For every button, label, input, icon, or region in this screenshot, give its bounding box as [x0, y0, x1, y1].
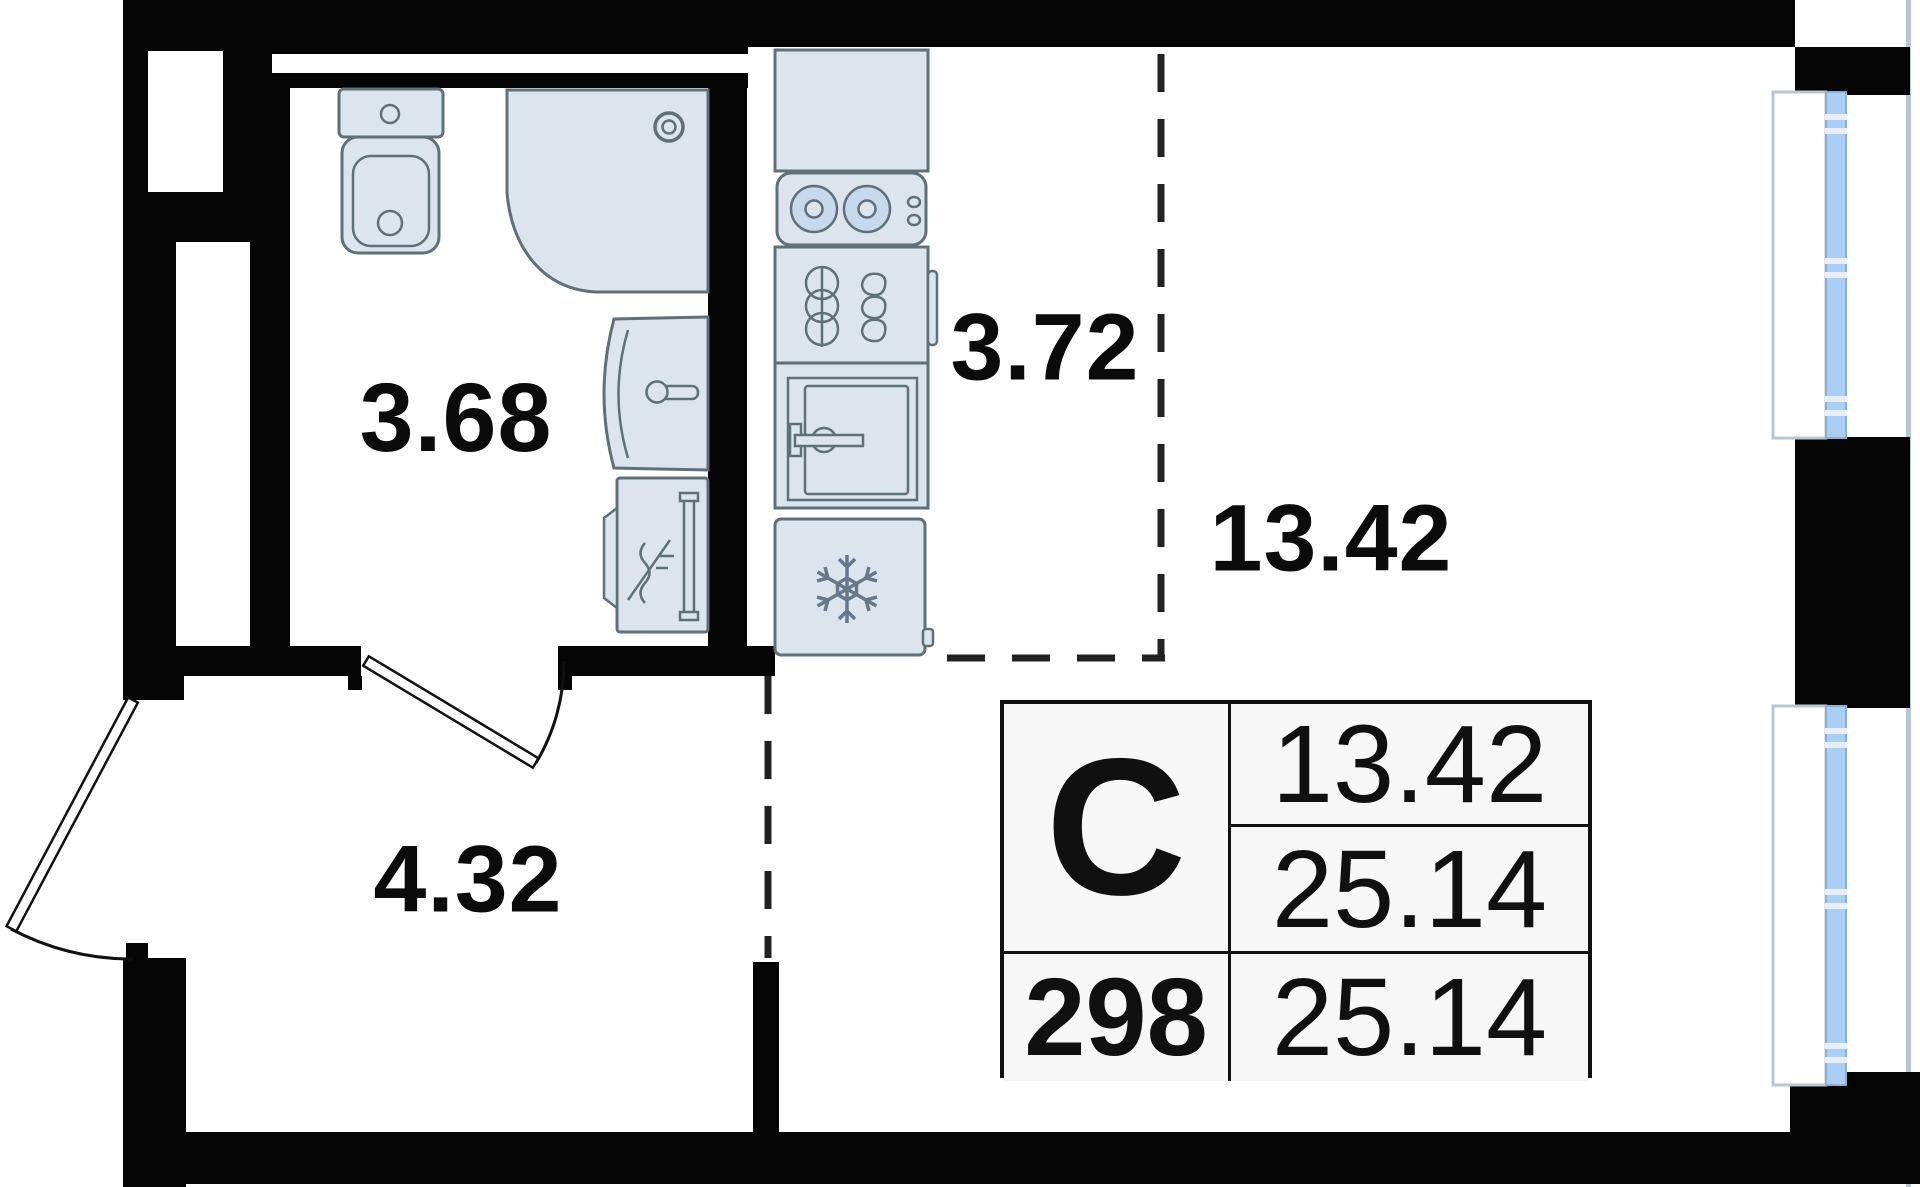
entry-door-leaf [7, 697, 138, 931]
bath-door-jamb-left [348, 676, 362, 690]
floor-plan-drawing [0, 0, 1920, 1187]
bathroom-area-label: 3.68 [360, 362, 553, 474]
floor-plan-canvas: 3.68 3.72 13.42 4.32 С 13.42 25.14 298 2… [0, 0, 1920, 1187]
window-sill-board [1773, 706, 1826, 1085]
window-glazing-icon [1826, 92, 1846, 438]
living-area-label: 13.42 [1210, 485, 1453, 594]
unit-info-table: С 13.42 25.14 298 25.14 [1000, 700, 1592, 1078]
unit-living-area: 13.42 [1231, 704, 1588, 827]
kitchen-cabinet [775, 50, 928, 171]
oven-icon [775, 363, 928, 508]
cabinet-handle [928, 271, 937, 345]
kitchen-area-label: 3.72 [951, 294, 1140, 403]
unit-total-area: 25.14 [1231, 827, 1588, 951]
stove-burners-icon [777, 173, 926, 245]
vent-slit [272, 54, 748, 73]
bathroom-door [363, 656, 564, 767]
bath-door-jamb-right [558, 676, 572, 690]
fridge [775, 519, 933, 655]
shaft-niche-top [148, 51, 223, 192]
sink-icon [604, 317, 708, 470]
window-top [1773, 92, 1847, 438]
kitchen-column [775, 50, 937, 655]
hall-area-label: 4.32 [374, 826, 563, 935]
bathroom-door-leaf [363, 656, 538, 767]
bathtub-icon [507, 90, 708, 292]
window-bottom [1773, 706, 1847, 1085]
window-sill-board [1773, 92, 1826, 438]
toilet-icon [339, 89, 443, 253]
window-glazing-icon [1826, 706, 1846, 1085]
entry-door [7, 697, 138, 959]
entry-door-jamb-bottom [126, 943, 148, 958]
entry-door-jamb-top [126, 683, 148, 698]
door-swing-arc-icon [11, 929, 133, 959]
unit-type-letter: С [1004, 704, 1231, 951]
washing-machine-icon [604, 478, 708, 632]
shaft-niche-main [176, 242, 250, 646]
fridge-handle [923, 629, 933, 646]
kitchen-rack-icon [775, 247, 937, 363]
unit-number: 298 [1004, 951, 1231, 1081]
unit-total-area-repeat: 25.14 [1231, 951, 1588, 1081]
